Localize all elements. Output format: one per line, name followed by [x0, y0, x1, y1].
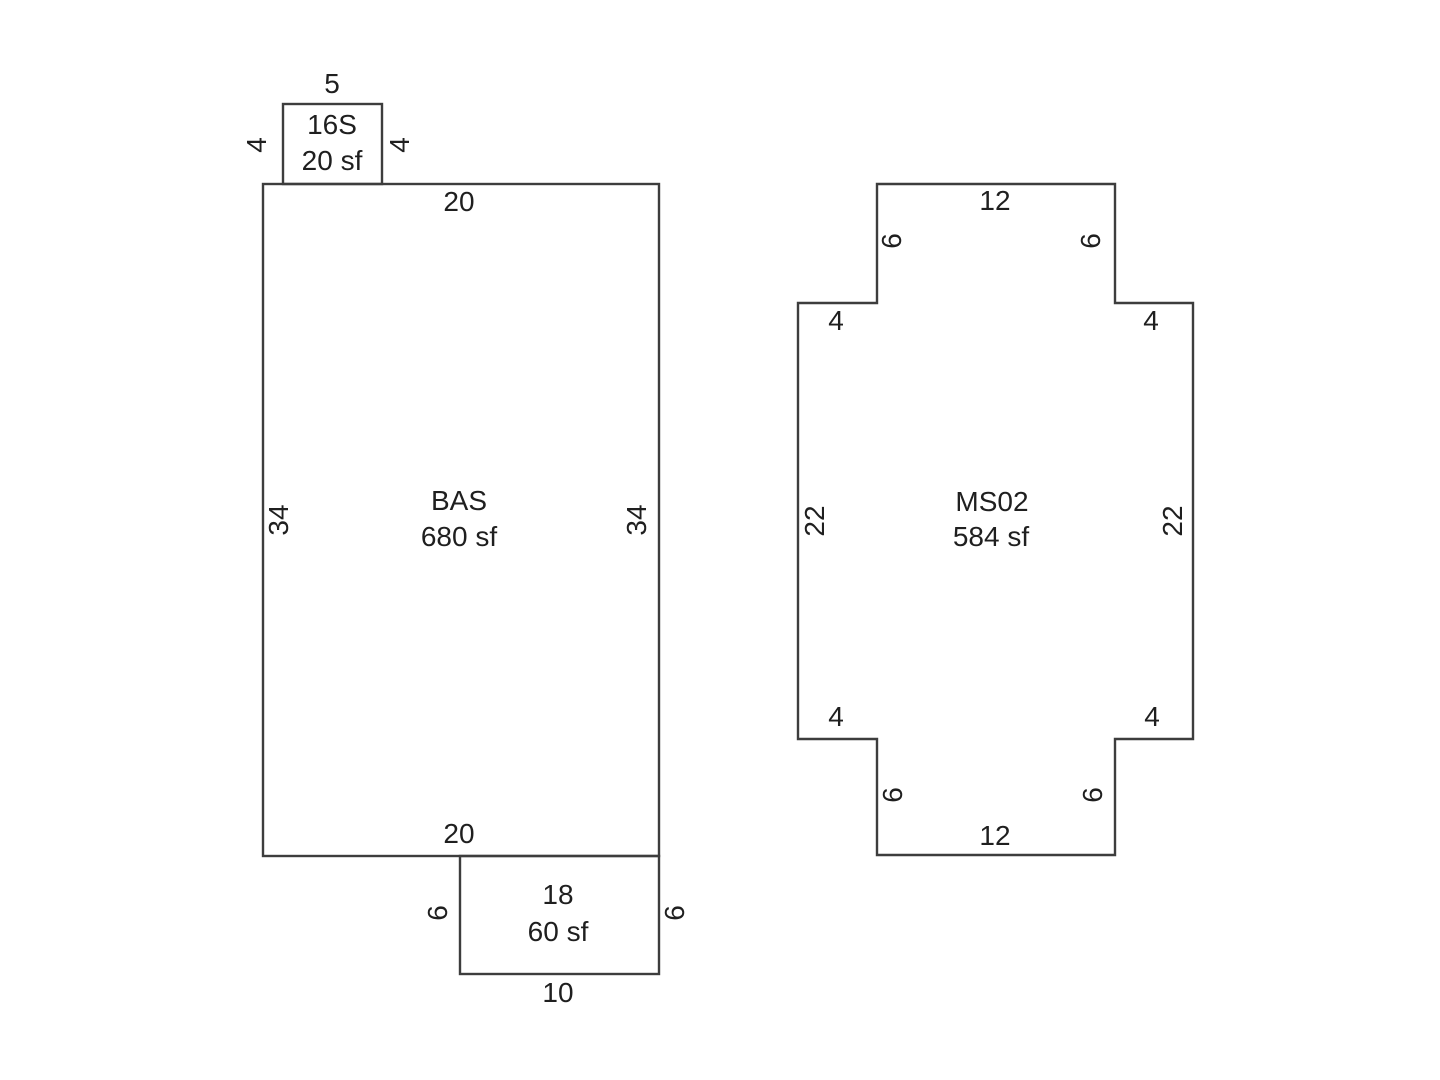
ms02-name: MS02	[955, 488, 1028, 516]
ms02-area: 584 sf	[953, 523, 1029, 551]
ms02-dim-left: 22	[801, 505, 829, 536]
addition-area: 20 sf	[302, 147, 363, 175]
ms02-dim-right: 22	[1159, 505, 1187, 536]
ms02-dim-shoulder-top-right: 4	[1143, 307, 1159, 335]
bas-area: 680 sf	[421, 523, 497, 551]
bas-dim-top: 20	[443, 188, 474, 216]
addition-dim-right: 4	[386, 137, 414, 153]
porch-18-outline	[460, 856, 659, 974]
ms02-dim-bottom-tab-left: 6	[879, 787, 907, 803]
ms02-dim-top: 12	[979, 187, 1010, 215]
ms02-dim-top-tab-right: 6	[1077, 233, 1105, 249]
addition-name: 16S	[307, 111, 357, 139]
porch-dim-right: 6	[661, 905, 689, 921]
ms02-dim-shoulder-bottom-right: 4	[1144, 703, 1160, 731]
bas-outline	[263, 184, 659, 856]
bas-name: BAS	[431, 487, 487, 515]
floor-plan-sketch: 5 16S 20 sf 4 4 20 BAS 680 sf 34 34 20 1…	[0, 0, 1440, 1080]
porch-name: 18	[542, 881, 573, 909]
addition-dim-top: 5	[324, 70, 340, 98]
ms02-dim-bottom: 12	[979, 822, 1010, 850]
addition-dim-left: 4	[243, 137, 271, 153]
ms02-outline	[798, 184, 1193, 855]
ms02-dim-top-tab-left: 6	[878, 233, 906, 249]
bas-dim-right: 34	[623, 504, 651, 535]
ms02-dim-shoulder-top-left: 4	[828, 307, 844, 335]
porch-dim-bottom: 10	[542, 979, 573, 1007]
ms02-dim-shoulder-bottom-left: 4	[828, 703, 844, 731]
porch-area: 60 sf	[528, 918, 589, 946]
sketch-outlines	[0, 0, 1440, 1080]
bas-dim-left: 34	[265, 504, 293, 535]
porch-dim-left: 6	[424, 905, 452, 921]
ms02-dim-bottom-tab-right: 6	[1079, 787, 1107, 803]
bas-dim-bottom: 20	[443, 820, 474, 848]
